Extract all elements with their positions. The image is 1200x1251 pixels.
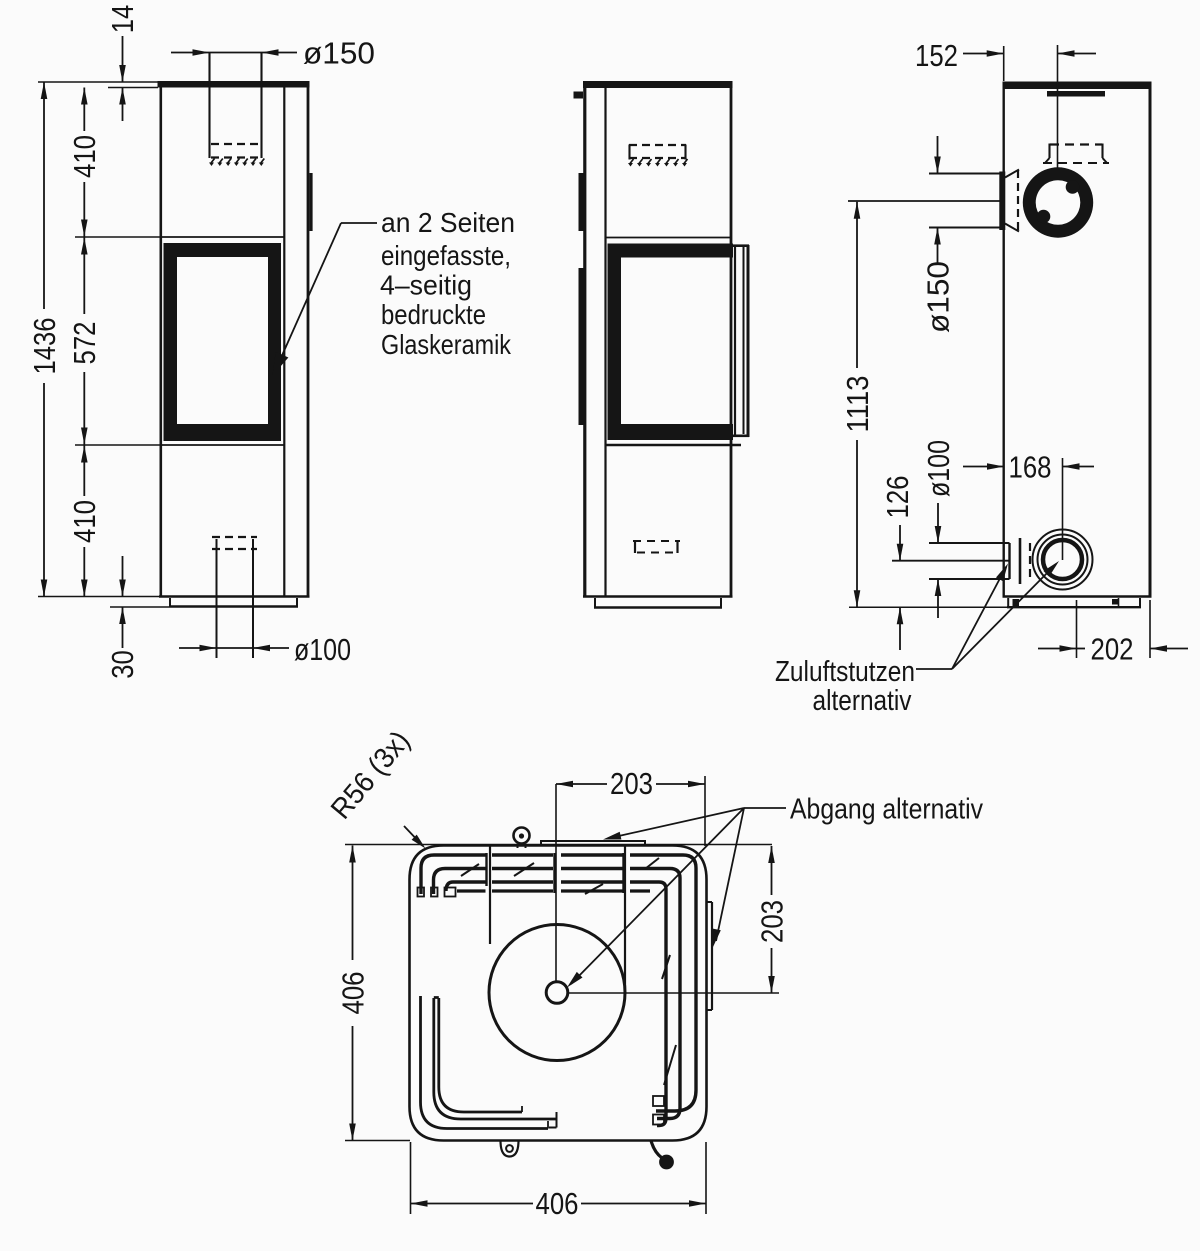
svg-text:Glaskeramik: Glaskeramik [381,329,512,360]
svg-text:Abgang alternativ: Abgang alternativ [790,794,983,826]
svg-text:572: 572 [67,322,102,365]
svg-text:alternativ: alternativ [813,685,912,717]
svg-text:an 2 Seiten: an 2 Seiten [381,207,515,238]
svg-text:1113: 1113 [840,376,875,433]
svg-text:14: 14 [105,5,140,34]
svg-text:bedruckte: bedruckte [381,299,486,330]
svg-text:ø100: ø100 [294,632,351,667]
svg-text:203: 203 [754,900,789,943]
svg-text:30: 30 [105,650,140,679]
svg-text:410: 410 [67,135,102,178]
svg-text:203: 203 [610,766,653,801]
svg-text:eingefasste,: eingefasste, [381,240,511,271]
svg-text:ø150: ø150 [920,261,955,333]
svg-text:R56 (3x): R56 (3x) [325,725,416,825]
svg-text:152: 152 [915,38,958,73]
svg-text:4–seitig: 4–seitig [380,270,472,301]
svg-text:1436: 1436 [27,318,62,375]
svg-text:ø100: ø100 [921,440,956,497]
svg-text:168: 168 [1009,449,1052,484]
svg-text:202: 202 [1091,631,1134,666]
svg-text:ø150: ø150 [303,35,375,70]
svg-text:126: 126 [880,476,915,519]
svg-text:410: 410 [67,500,102,543]
svg-text:406: 406 [536,1186,579,1221]
svg-text:Zuluftstutzen: Zuluftstutzen [775,656,915,688]
svg-text:406: 406 [335,972,370,1015]
